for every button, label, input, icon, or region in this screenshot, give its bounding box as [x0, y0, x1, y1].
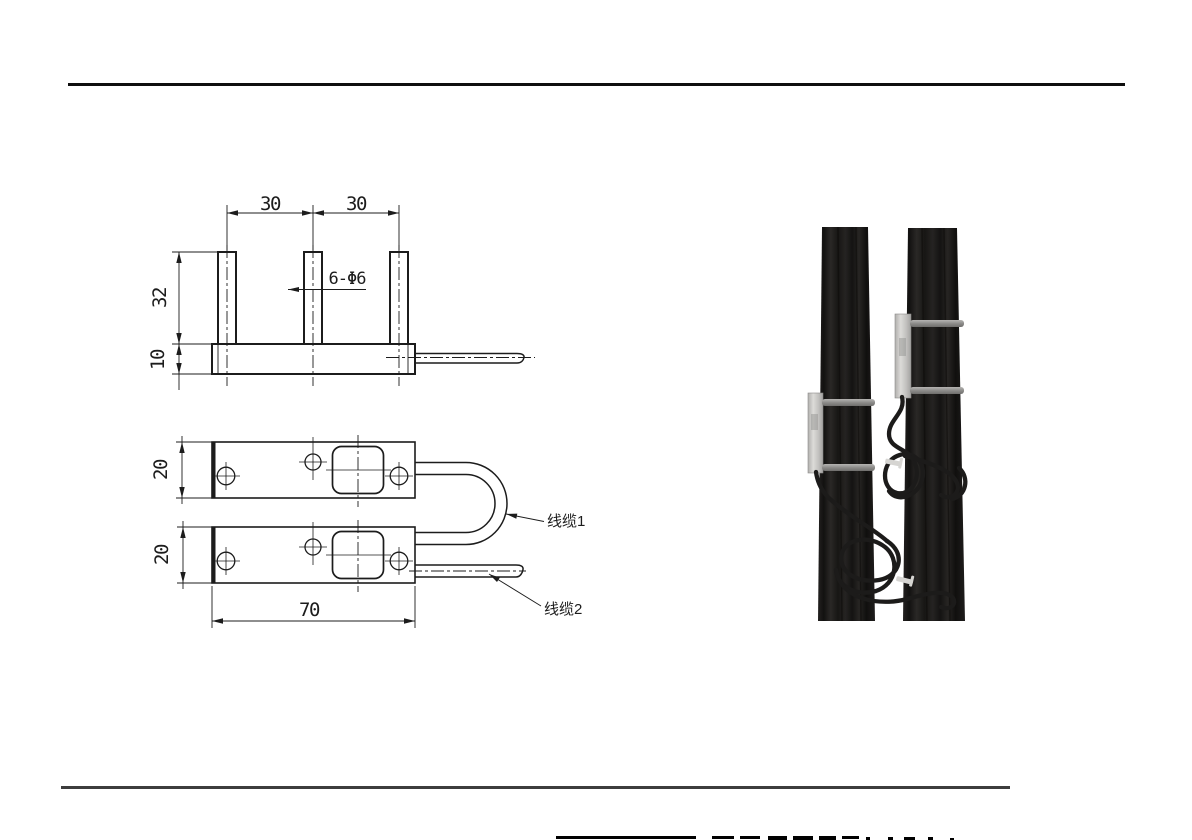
plate-1: [212, 435, 415, 507]
product-photo: [780, 215, 995, 630]
technical-drawing: 30 30 32 10 6-Φ6: [140, 180, 610, 650]
callout-6-phi6: 6-Φ6: [329, 269, 367, 289]
dimension-70: 70: [212, 586, 415, 628]
dimension-pin-spacing: 30 30: [227, 193, 399, 250]
document-page: 30 30 32 10 6-Φ6: [0, 0, 1192, 840]
dim-20-plate2: 20: [151, 544, 173, 565]
sensor-left-body: [808, 393, 823, 473]
belt-right: [903, 228, 965, 621]
dim-20-plate1: 20: [150, 459, 172, 480]
footer-rule: [61, 786, 1010, 789]
dimension-heights: 32 10: [147, 252, 218, 390]
cable2-label: 线缆2: [544, 601, 582, 618]
hole-callout: 6-Φ6: [288, 269, 366, 292]
cable2-leader: 线缆2: [489, 574, 582, 618]
top-view: 20 20 70 线缆1: [150, 435, 585, 628]
belt-left: [818, 227, 875, 621]
base-bar: [212, 344, 415, 374]
cable1-label: 线缆1: [547, 513, 585, 530]
sensor-right-label: [899, 338, 906, 356]
cable2-straight: [409, 565, 526, 577]
sensor-left-pin-bottom: [822, 464, 875, 471]
cable1-u-loop: [415, 463, 507, 545]
sensor-right-pin-bottom: [910, 387, 964, 394]
header-rule: [68, 83, 1125, 86]
dim-30-right: 30: [346, 193, 367, 215]
dim-32: 32: [149, 288, 171, 308]
plate-2: [212, 520, 415, 592]
front-view: 30 30 32 10 6-Φ6: [147, 193, 535, 390]
cable1-leader: 线缆1: [506, 513, 585, 530]
dim-70: 70: [299, 599, 320, 621]
dim-30-left: 30: [260, 193, 281, 215]
sensor-left-pin-top: [822, 399, 875, 406]
dimension-plate2-20: 20: [151, 521, 212, 589]
sensor-left-label: [811, 414, 818, 430]
sensor-right-pin-top: [910, 320, 964, 327]
dimension-plate1-20: 20: [150, 436, 212, 504]
dim-10: 10: [147, 349, 169, 370]
